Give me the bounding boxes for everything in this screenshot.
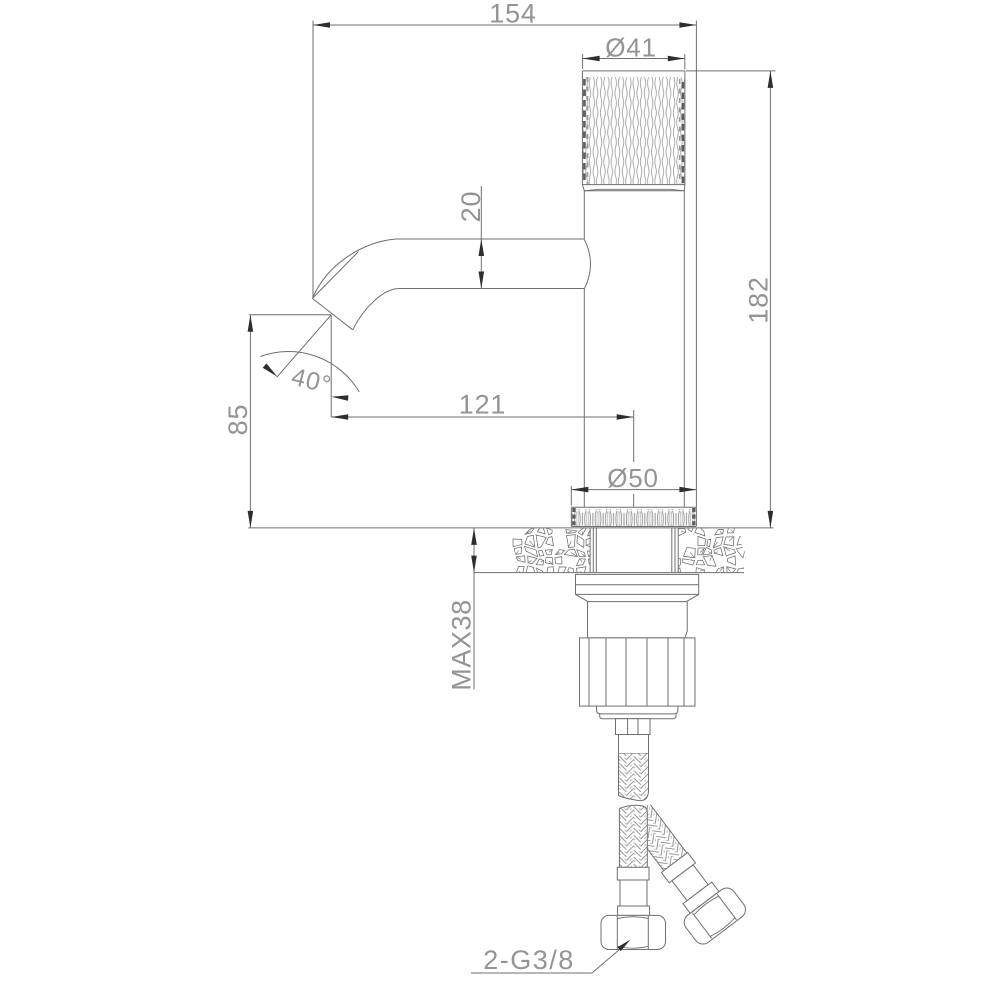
svg-text:20: 20 <box>456 191 486 223</box>
svg-text:Ø50: Ø50 <box>607 463 659 493</box>
svg-text:2-G3/8: 2-G3/8 <box>483 945 575 975</box>
svg-text:85: 85 <box>223 404 253 436</box>
svg-text:MAX38: MAX38 <box>447 599 477 691</box>
svg-text:121: 121 <box>459 390 506 420</box>
svg-text:182: 182 <box>744 276 774 323</box>
svg-text:154: 154 <box>489 0 536 29</box>
svg-text:Ø41: Ø41 <box>605 33 657 63</box>
